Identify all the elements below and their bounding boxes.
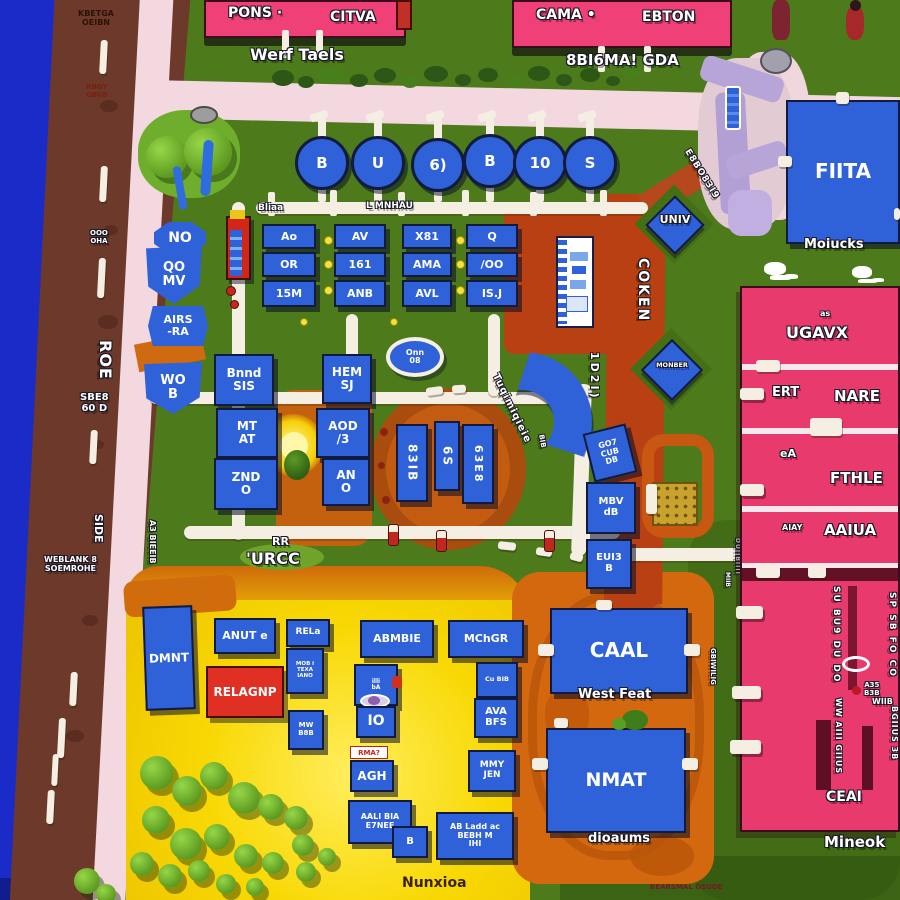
tree: [140, 756, 174, 790]
clock-tower-cap: [230, 210, 245, 219]
courtyard-side-label: DUIIBIIII: [733, 538, 740, 575]
clock-tower-sign: [230, 230, 242, 276]
bank-blotch: [82, 615, 98, 626]
lamp-dot: [456, 236, 465, 245]
pedestrian-head: [850, 0, 861, 11]
complex-label-ea: eA: [780, 448, 796, 460]
complex-label-aaiua: AAIUA: [824, 522, 876, 539]
plaza-label-westfeat: West Feat: [578, 688, 651, 702]
caption-urcc: 'URCC: [246, 550, 300, 568]
bldg-caal: CAAL: [550, 608, 688, 694]
bank-vlabel-side: SIDE: [92, 514, 104, 543]
hall-b3: ANB: [334, 280, 386, 307]
bldg-rela: RELa: [286, 619, 330, 647]
bush: [556, 74, 572, 86]
bldg-eynee-ext: B: [392, 826, 428, 858]
bollard: [388, 524, 399, 546]
bldg-relagnp: RELAGNP: [206, 666, 284, 718]
tree: [292, 834, 314, 856]
bush: [528, 66, 550, 81]
bank-blotch: [66, 730, 84, 742]
hall-d1: Q: [466, 224, 518, 249]
door-chip: [554, 718, 568, 728]
bank-label: KBETGAOEIBN: [78, 10, 114, 28]
complex-red-dot: [852, 686, 861, 695]
complex-slot: [816, 720, 831, 790]
tree: [262, 852, 284, 874]
bank-blotch: [100, 100, 118, 112]
rock: [190, 106, 218, 124]
complex-oval-ring: [842, 656, 870, 672]
bldg-mob: MOB iTEXAIANO: [286, 648, 324, 694]
bldg-agh: AGH: [350, 760, 394, 792]
diamond-monber-label: MONBER: [646, 362, 698, 369]
caption-werf-taels: Werf Taels: [250, 46, 344, 64]
path-label: Bliaa: [258, 204, 283, 214]
track-bldg-1: 83IB: [396, 424, 428, 502]
tree: [200, 762, 228, 790]
complex-vlabel: SU BU9 DU DO: [830, 586, 840, 684]
map-board-chip: [570, 252, 588, 261]
bldg-mchgr: MChGR: [448, 620, 524, 658]
lamp-dot: [324, 236, 333, 245]
leaf-cluster: [612, 718, 626, 730]
road-label-coken: COKEN: [635, 258, 650, 322]
bank-blotch: [98, 315, 118, 329]
greenstrip-vlabel: MIIB: [723, 572, 730, 587]
bldg-mbv: MBVdB: [586, 482, 636, 534]
bush: [478, 68, 498, 82]
tree: [204, 824, 230, 850]
fiita-tab: [778, 156, 792, 167]
bench: [732, 686, 761, 699]
bollard: [436, 530, 447, 552]
bldg-hem-sj: HEMSJ: [322, 354, 372, 404]
tree: [318, 848, 336, 866]
plaza-caption-dioaums: dioaums: [588, 832, 650, 846]
field-caption-nunxioa: Nunxioa: [402, 876, 467, 891]
complex-caption-mineok: Mineok: [824, 834, 885, 851]
bench: [730, 740, 761, 754]
pole-stub: [486, 186, 494, 202]
campus-tree: [284, 450, 310, 480]
track-bldg-2: 6S: [434, 421, 460, 491]
hall-b1: AV: [334, 224, 386, 249]
sculpture-foot: [728, 190, 772, 236]
door-chip: [684, 644, 700, 656]
leaf-cluster: [622, 710, 648, 730]
hall-d3: IS.J: [466, 280, 518, 307]
complex-chip: [756, 360, 780, 372]
complex-chip: [808, 566, 826, 578]
map-board-chip: [566, 296, 588, 312]
bldg-nmat: NMAT: [546, 728, 686, 833]
hall-c3: AVL: [402, 280, 452, 307]
corner-caption: BEARSMAL OSUDE: [650, 884, 723, 892]
bldg-myjen: MMYJEN: [468, 750, 516, 792]
tree: [146, 136, 188, 178]
hall-a1: Ao: [262, 224, 316, 249]
bench: [740, 484, 764, 496]
stop-marker-b2: B: [463, 134, 517, 188]
north-hall-east-label-ebton: EBTON: [642, 10, 695, 25]
greenstrip-vlabel-west: A3 BIEEIB: [147, 520, 156, 564]
track-bldg-3: 63E8: [462, 424, 494, 504]
bench: [740, 388, 764, 400]
track-mark: [378, 462, 385, 469]
bank-label-weblank: WEBLANK 8SOEMROHE: [44, 556, 97, 574]
complex-label-fthle: FTHLE: [830, 470, 883, 487]
complex-vlabel: SP SB FO CO: [886, 592, 896, 678]
complex-label-ert: ERT: [772, 386, 799, 400]
complex-slot: [848, 586, 857, 690]
satellite-dish-core: [368, 696, 380, 705]
stop-marker-6: 6): [411, 138, 465, 192]
complex-label-a35: A35B3B: [864, 682, 880, 697]
bush: [508, 76, 522, 87]
track-dash: [452, 385, 467, 394]
bench: [736, 606, 763, 619]
caption-8bi6ma-gda: 8BI6MA! GDA: [566, 52, 679, 69]
solar-chip: [646, 484, 657, 514]
bracket-pole: [462, 190, 469, 216]
map-board-chip: [572, 266, 586, 274]
bush: [298, 76, 314, 88]
map-board-chip: [570, 280, 586, 289]
bank-label-sbe8: SBE860 D: [80, 392, 109, 414]
animal-figure: [764, 262, 786, 275]
bollard: [544, 530, 555, 552]
north-hall-east-label-cama: CAMA •: [536, 8, 596, 23]
bush: [350, 74, 368, 87]
bldg-anut: ANUT e: [214, 618, 276, 654]
tree: [170, 828, 202, 860]
bush: [272, 70, 294, 86]
lamp-dot: [390, 318, 398, 326]
door-chip: [596, 600, 612, 610]
campus-map-illustration: UNIVMONBERE8BO83I9FIITAMoiucks1D2I)BU6)B…: [0, 0, 900, 900]
tree: [284, 806, 308, 830]
hall-b2: 161: [334, 252, 386, 277]
dark-figure: [772, 0, 790, 40]
fiita-building: FIITA: [786, 100, 900, 244]
tree: [216, 874, 236, 894]
bush: [424, 66, 448, 82]
complex-label-as: as: [820, 310, 830, 319]
north-hall-west-label-citva: CITVA: [330, 10, 376, 25]
lamp-dot: [324, 286, 333, 295]
fiita-tab: [894, 208, 900, 220]
complex-slot: [862, 726, 873, 790]
lamp-dot: [324, 260, 333, 269]
rma-tag: RMA?: [350, 746, 388, 759]
hall-c2: AMA: [402, 252, 452, 277]
stop-marker-b1: B: [295, 136, 349, 190]
bank-label: RBGYGBVB: [86, 84, 108, 99]
north-hall-west-label-pons: PONS ·: [228, 6, 282, 21]
bank-vlabel-roe: ROE: [96, 340, 114, 380]
complex-chip: [756, 566, 780, 578]
track-mark: [380, 428, 388, 436]
pedestrian-figure: [846, 6, 864, 40]
lamp-dot: [456, 260, 465, 269]
oval-sign: Onn08: [390, 341, 440, 373]
bush: [455, 74, 471, 86]
tree: [172, 776, 202, 806]
bldg-an-o: ANO: [322, 458, 370, 506]
tree: [246, 878, 264, 896]
stop-marker-s: S: [563, 136, 617, 190]
bldg-cubib: Cu BIB: [476, 662, 518, 698]
complex-divider: [742, 506, 898, 512]
animal-figure: [852, 266, 872, 278]
complex-label-ugavx: UGAVX: [786, 324, 848, 342]
bldg-znd-o: ZNDO: [214, 458, 278, 510]
door-chip: [682, 758, 698, 770]
bldg-io: IO: [356, 706, 396, 738]
tree: [158, 864, 182, 888]
stop-marker-10: 10: [513, 136, 567, 190]
door-chip: [538, 644, 554, 656]
bldg-bfs: AVABFS: [474, 698, 518, 738]
bldg-mt-at: MTAT: [216, 408, 278, 458]
bldg-abmbie: ABMBIE: [360, 620, 434, 658]
diamond-univ-label: UNIV: [652, 214, 698, 226]
track-mark: [382, 496, 390, 504]
hall-a2: OR: [262, 252, 316, 277]
complex-label-nare: NARE: [834, 388, 880, 405]
rooster: [392, 676, 402, 688]
hydrant-dot: [226, 286, 236, 296]
lamp-dot: [456, 286, 465, 295]
bldg-eui3: EUI3B: [586, 539, 632, 589]
hall-d2: /OO: [466, 252, 518, 277]
bldg-bebh: AB Ladd acBEBH MIHI: [436, 812, 514, 860]
tree: [96, 884, 116, 900]
solar-panel: [652, 482, 698, 526]
chimney: [396, 0, 412, 30]
bush: [580, 68, 600, 82]
hall-c1: X81: [402, 224, 452, 249]
arc-side-label: 1D2I): [588, 352, 600, 401]
bank-label-ooo: OOOOHA: [90, 230, 108, 245]
fiita-caption: Moiucks: [804, 238, 864, 252]
greenstrip-vlabel: GBIWILIG: [708, 648, 716, 685]
complex-vlabel: BGIIUS 3B: [889, 706, 898, 760]
bush: [402, 76, 418, 88]
tree: [258, 794, 284, 820]
path-label: L MNHAU: [366, 202, 413, 212]
bush: [318, 66, 344, 84]
door-chip: [532, 758, 548, 770]
roundabout-circle: [760, 48, 792, 74]
fiita-tab: [836, 92, 849, 104]
bldg-dmnt: DMNT: [142, 605, 196, 711]
hall-a3: 15M: [262, 280, 316, 307]
lamp-dot: [300, 318, 308, 326]
bush: [374, 68, 396, 83]
bracket-pole: [530, 192, 537, 216]
badge-airs: AIRS-RA: [148, 306, 208, 346]
bldg-bnnd-sis: BnndSIS: [214, 354, 274, 406]
bldg-mw: MWB8B: [288, 710, 324, 750]
hydrant-dot: [230, 300, 239, 309]
complex-gate: [810, 418, 842, 436]
bracket-pole: [330, 190, 337, 216]
arc-building-sublabel: BIB: [536, 434, 546, 448]
tree: [296, 862, 316, 882]
complex-label-ceai: CEAI: [826, 790, 862, 805]
bush: [606, 76, 620, 86]
path-top: [256, 202, 648, 214]
tree: [228, 782, 260, 814]
tree: [234, 844, 258, 868]
tree: [142, 806, 170, 834]
stop-marker-u: U: [351, 136, 405, 190]
bldg-aod-3: AOD/3: [316, 408, 370, 458]
junction-sign: [725, 86, 741, 130]
tree: [188, 860, 210, 882]
caption-rr: RR: [272, 536, 289, 548]
tree: [130, 852, 154, 876]
bracket-pole: [600, 190, 607, 216]
complex-label-aiay: AIAY: [782, 524, 802, 533]
complex-vlabel: WW AIII GIIUS: [833, 698, 842, 774]
